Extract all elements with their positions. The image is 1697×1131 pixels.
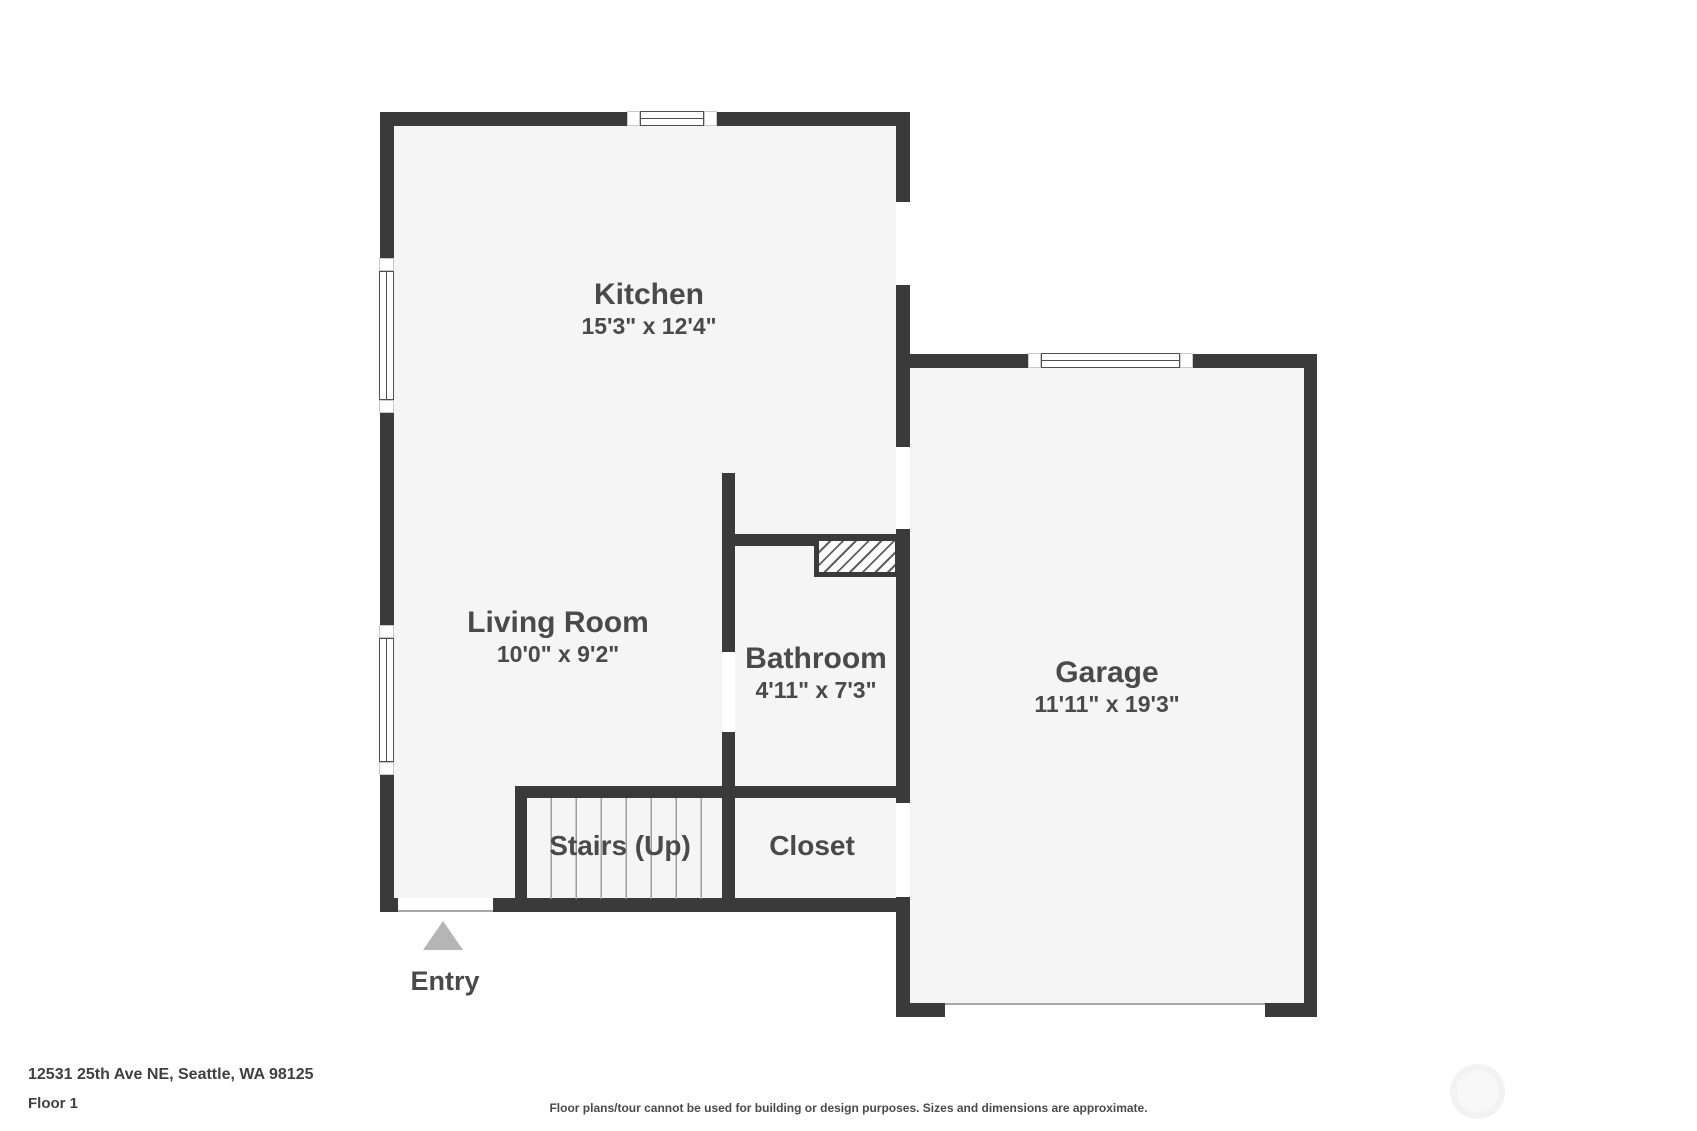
window-cap	[379, 400, 394, 413]
room-label-kitchen: Kitchen 15'3" x 12'4"	[581, 277, 716, 339]
room-label-living-room: Living Room 10'0" x 9'2"	[467, 605, 649, 667]
closet-name: Closet	[769, 830, 855, 862]
wall-stairs-left	[515, 786, 527, 912]
kitchen-dimensions: 15'3" x 12'4"	[581, 313, 716, 339]
window-cap	[1028, 353, 1041, 368]
window-cap	[379, 625, 394, 638]
wall-stairs-closet-top	[515, 786, 910, 798]
window-cap	[1180, 353, 1193, 368]
living-room-dimensions: 10'0" x 9'2"	[467, 641, 649, 667]
room-label-closet: Closet	[769, 830, 855, 862]
garage-dimensions: 11'11" x 19'3"	[1034, 691, 1179, 717]
stairs-name: Stairs (Up)	[549, 830, 691, 862]
window-frame	[640, 111, 704, 126]
window-frame	[1041, 353, 1180, 368]
disclaimer-text: Floor plans/tour cannot be used for buil…	[0, 1101, 1697, 1115]
kitchen-name: Kitchen	[581, 277, 716, 313]
window-frame	[379, 271, 394, 400]
room-label-bathroom: Bathroom 4'11" x 7'3"	[745, 641, 887, 703]
watermark-logo-circle	[1450, 1064, 1505, 1119]
room-label-stairs: Stairs (Up)	[549, 830, 691, 862]
garage-name: Garage	[1034, 655, 1179, 691]
entry-name: Entry	[410, 966, 479, 996]
garage-vehicle-door-opening	[945, 1003, 1265, 1017]
window-cap	[627, 111, 640, 126]
bathroom-dimensions: 4'11" x 7'3"	[745, 677, 887, 703]
bathroom-fixture-hatch	[814, 536, 900, 577]
room-label-garage: Garage 11'11" x 19'3"	[1034, 655, 1179, 717]
wall-garage-right	[1304, 354, 1317, 1017]
door-opening-bathroom	[722, 652, 735, 732]
window-garage-top	[1028, 353, 1193, 368]
door-opening-kitchen-right	[896, 202, 910, 285]
bathroom-name: Bathroom	[745, 641, 887, 677]
property-address: 12531 25th Ave NE, Seattle, WA 98125	[28, 1066, 313, 1084]
entry-arrow-icon	[423, 921, 463, 950]
window-cap	[704, 111, 717, 126]
entry-door-opening	[398, 898, 493, 912]
window-cap	[379, 258, 394, 271]
wall-left	[380, 112, 394, 912]
floor-plan-canvas: Kitchen 15'3" x 12'4" Living Room 10'0" …	[0, 0, 1697, 1131]
window-frame	[379, 638, 394, 762]
room-label-entry: Entry	[410, 966, 479, 996]
door-opening-kitchen-garage	[896, 447, 910, 529]
window-left-upper	[379, 258, 394, 413]
window-kitchen-top	[627, 111, 717, 126]
living-room-name: Living Room	[467, 605, 649, 641]
door-opening-closet-garage	[896, 803, 910, 897]
window-cap	[379, 762, 394, 775]
window-left-lower	[379, 625, 394, 775]
